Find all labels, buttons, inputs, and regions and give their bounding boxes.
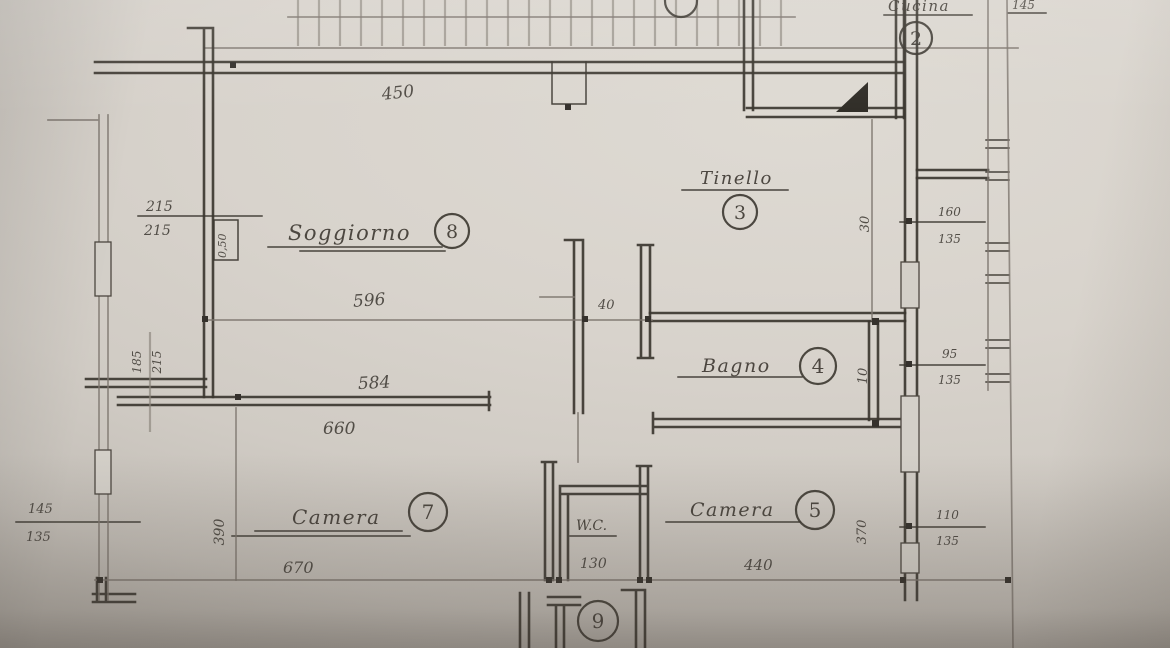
room-7-number: 7 [422, 500, 435, 524]
dim-camera5-depth: 370 [855, 520, 870, 545]
dim-wc-width: 130 [580, 556, 607, 572]
dim-left-top-lower: 215 [143, 223, 171, 239]
room-9-number: 9 [592, 609, 605, 633]
dim-right-bottom-upper: 110 [936, 508, 959, 522]
label-cucina: Cucina [888, 0, 950, 15]
room-3-number: 3 [734, 202, 746, 224]
dim-camera-outer-width: 660 [323, 419, 356, 439]
floor-plan-photo: 1 2 3 4 5 7 8 9 Soggiorno Tinello Bagno … [0, 0, 1170, 648]
room-8-number: 8 [446, 221, 458, 243]
dim-right-bottom-lower: 135 [936, 534, 959, 548]
room-5-number: 5 [809, 498, 822, 522]
label-soggiorno: Soggiorno [288, 221, 411, 245]
floor-plan-drawing: 1 2 3 4 5 7 8 9 Soggiorno Tinello Bagno … [0, 0, 1170, 648]
dim-wall-gap: 40 [597, 298, 615, 313]
dim-top-right: 145 [1012, 0, 1035, 12]
label-camera-7: Camera [292, 505, 381, 529]
dim-camera5-width: 440 [743, 556, 773, 574]
dim-left-bottom-lower: 135 [26, 530, 51, 545]
dim-right-mid-lower: 135 [938, 373, 961, 387]
label-tinello: Tinello [700, 168, 773, 189]
room-1-badge [665, 0, 697, 17]
dim-camera7-depth: 390 [212, 519, 228, 546]
label-bagno: Bagno [701, 355, 771, 377]
label-camera-5: Camera [690, 499, 775, 521]
dim-right-mid-upper: 95 [942, 347, 957, 361]
dim-balcony-width: 450 [380, 82, 416, 105]
dim-right-top-lower: 135 [938, 232, 961, 246]
room-4-number: 4 [812, 354, 825, 378]
room-labels: Soggiorno Tinello Bagno Camera Camera Cu… [288, 0, 950, 534]
dim-camera7-width: 670 [283, 558, 314, 577]
dim-pillar-rot: 0,50 [216, 234, 229, 259]
room-2-number: 2 [910, 28, 922, 50]
dim-bagno-wall: 10 [856, 368, 871, 385]
thin-details [16, 13, 1046, 536]
dim-camera-inner-width: 584 [357, 372, 390, 394]
dim-tinello-wall: 30 [858, 216, 873, 233]
dim-soggiorno-width: 596 [352, 290, 386, 312]
dim-left-top-upper: 215 [145, 199, 173, 215]
dim-mid-rot-b: 215 [150, 351, 164, 375]
dim-mid-rot-a: 185 [130, 351, 144, 374]
label-wc: W.C. [576, 518, 607, 534]
dim-left-bottom-upper: 145 [28, 502, 53, 517]
dimension-labels: 450 145 215 215 0,50 596 40 584 660 185 … [26, 0, 1035, 577]
dim-right-top-upper: 160 [938, 205, 961, 219]
